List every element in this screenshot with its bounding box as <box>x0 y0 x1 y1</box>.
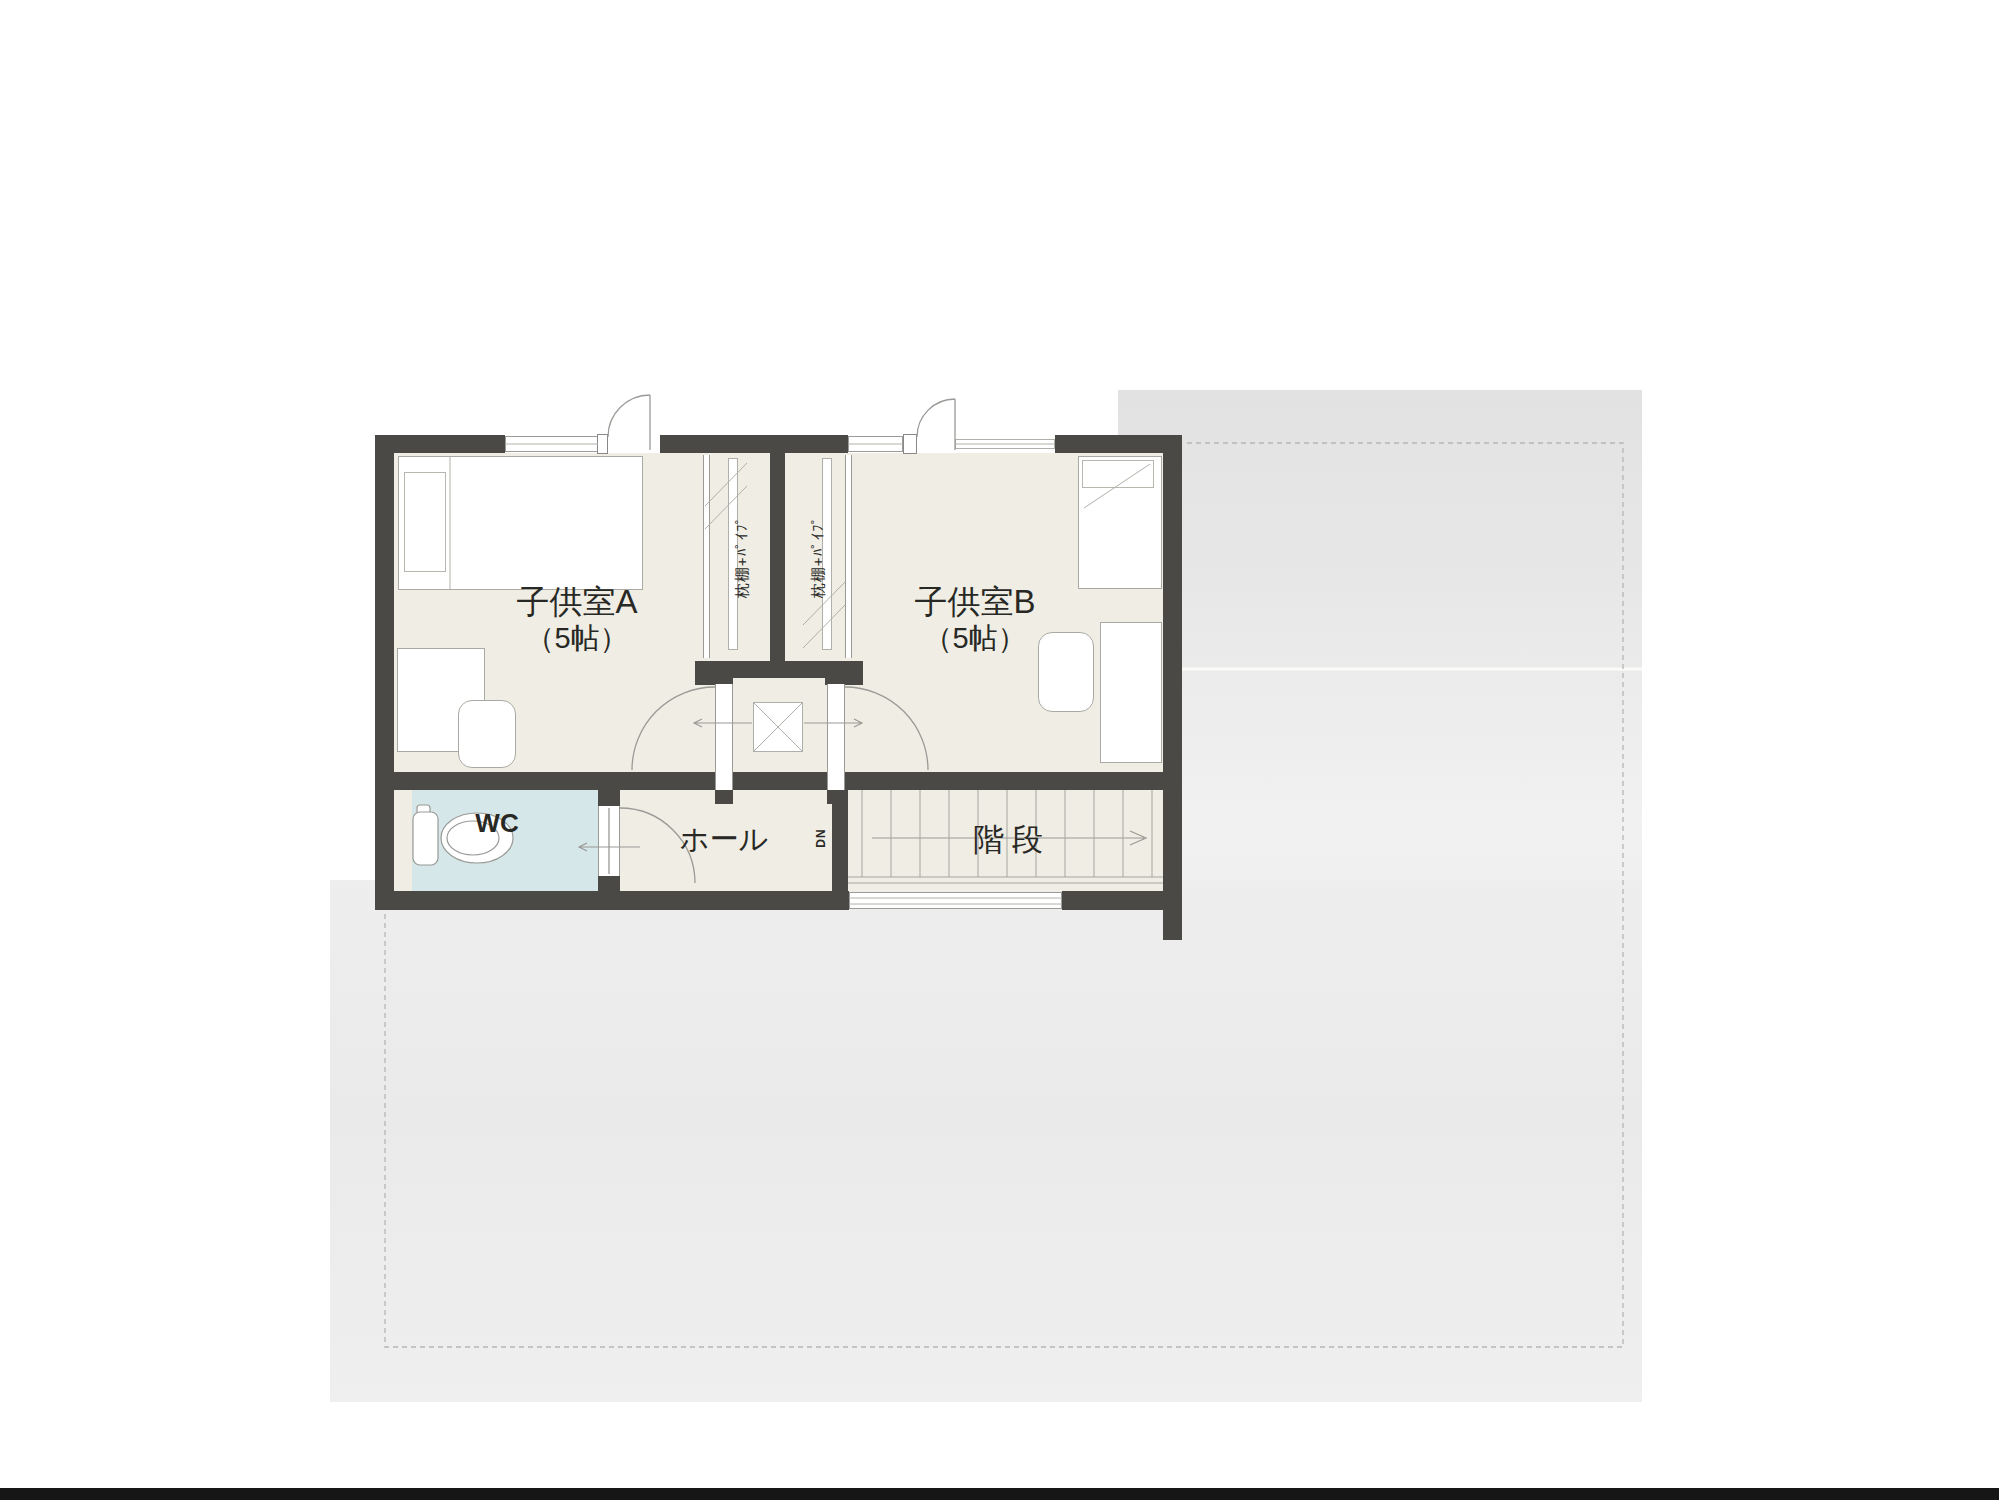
room-b-size-label: （5帖） <box>923 619 1026 659</box>
door-arc-room-a <box>632 687 715 770</box>
door-arc-room-b <box>845 687 928 770</box>
stairs-label: 階段 <box>973 819 1051 861</box>
closet-a-slash1 <box>705 463 747 506</box>
closet-b-label: 枕棚+ﾊﾟｲﾌﾟ <box>809 516 828 598</box>
bottom-edge-bar <box>0 1488 1999 1500</box>
floor-plan-canvas: 子供室A （5帖） 子供室B （5帖） WC ホール 階段 DN 枕棚+ﾊﾟｲﾌ… <box>0 0 1999 1500</box>
swing-arrow-right-icon <box>804 719 862 727</box>
room-a-label: 子供室A <box>516 580 637 625</box>
linework-layer <box>0 0 1999 1500</box>
stairs-dn-label: DN <box>814 828 828 847</box>
room-b-label: 子供室B <box>914 580 1035 625</box>
swing-arrow-left-icon <box>694 719 752 727</box>
closet-b-slash1 <box>803 605 845 648</box>
closet-a-label: 枕棚+ﾊﾟｲﾌﾟ <box>733 516 752 598</box>
casement-arc-a <box>608 395 650 437</box>
room-a-size-label: （5帖） <box>525 619 628 659</box>
casement-arc-b <box>917 399 955 437</box>
bed-b-pillow-line <box>1084 464 1150 508</box>
hall-label: ホール <box>680 820 768 860</box>
wc-label: WC <box>475 808 518 839</box>
